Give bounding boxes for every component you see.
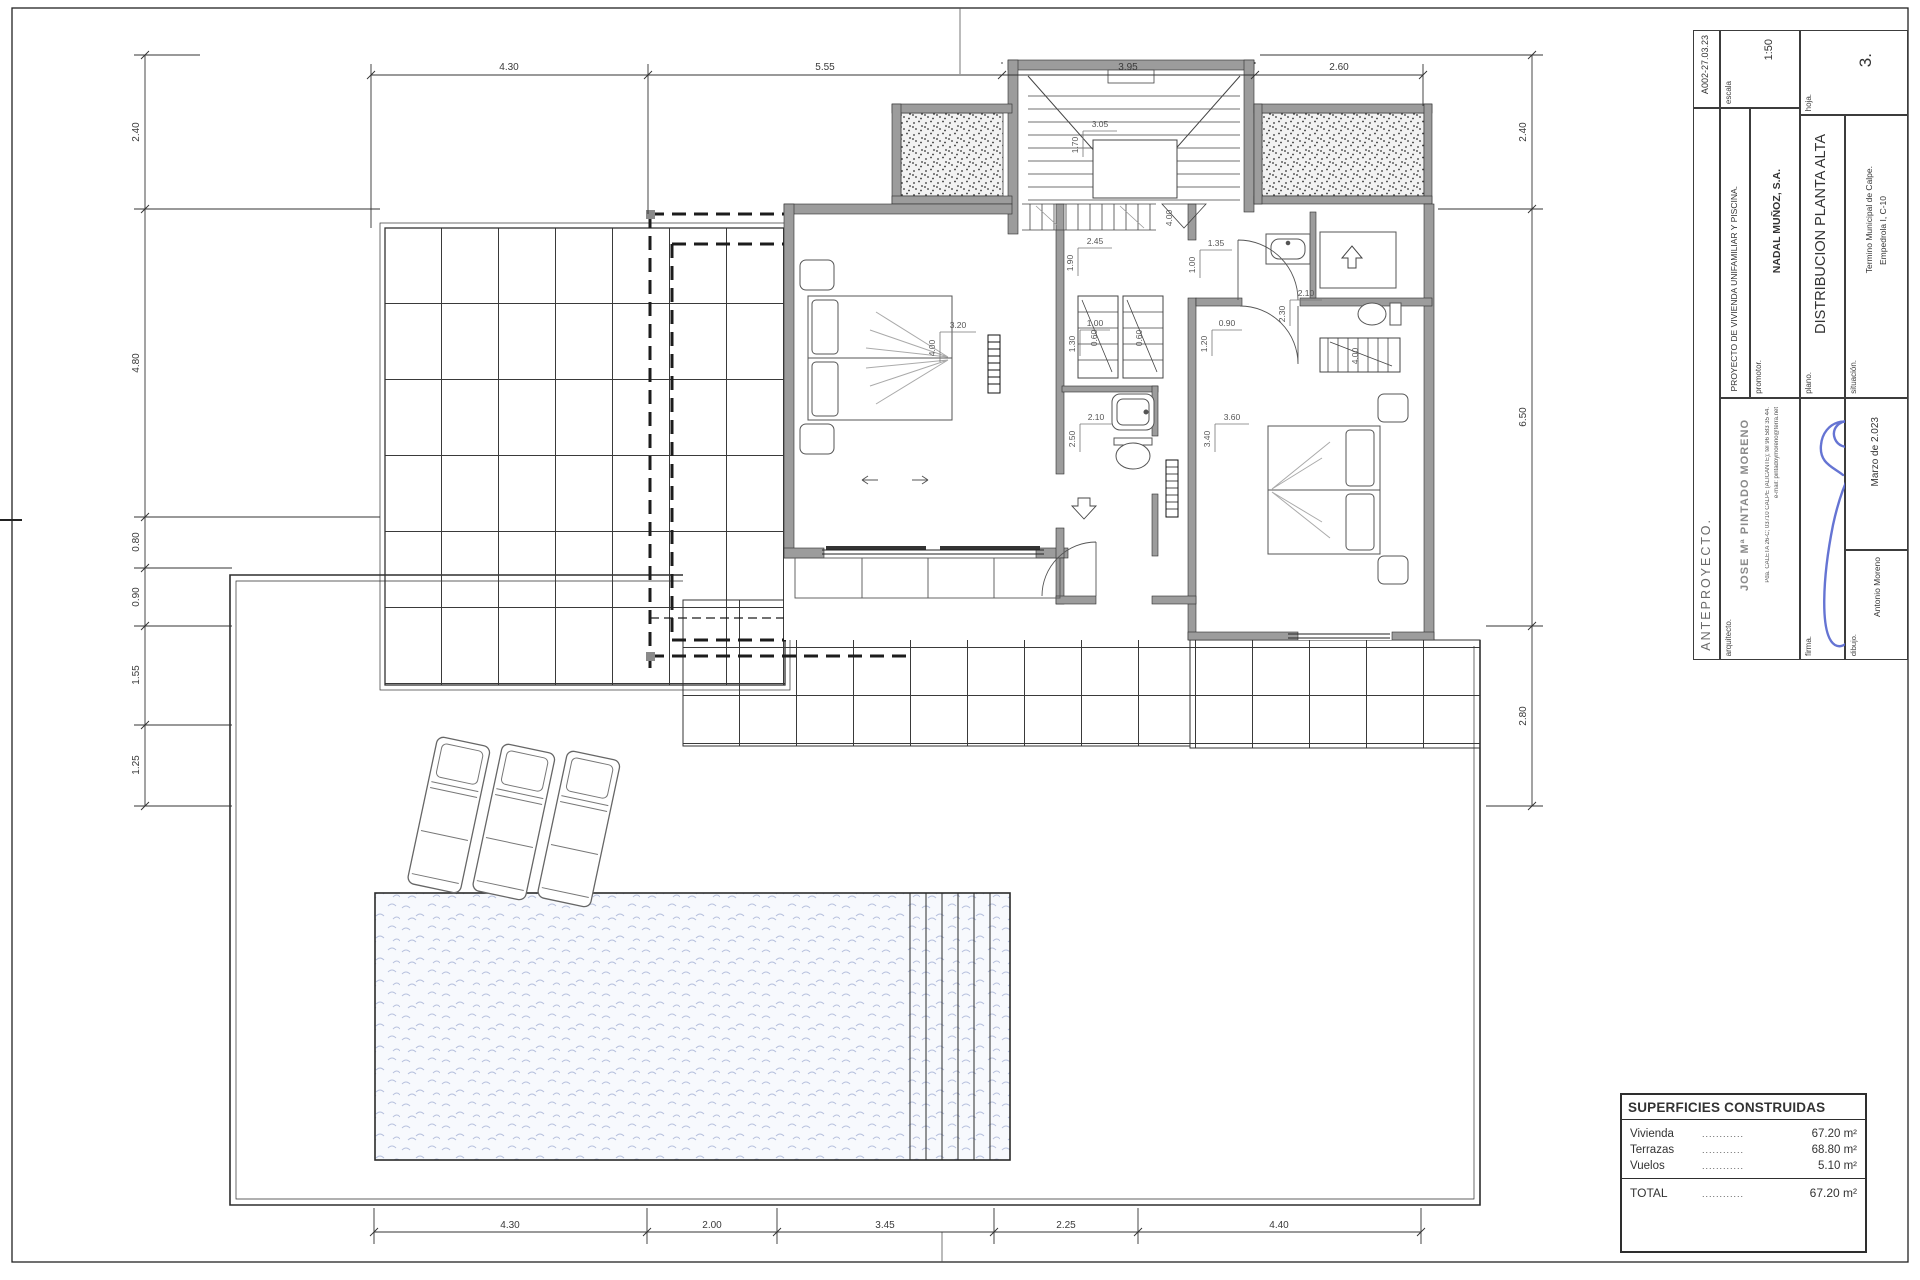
plan-name-label: plano. [1804, 372, 1813, 394]
svg-text:2.60: 2.60 [1329, 62, 1349, 73]
svg-text:2.30: 2.30 [1277, 305, 1287, 322]
svg-text:3.95: 3.95 [1118, 62, 1138, 73]
promoter-name: NADAL MUÑOZ, S.A. [1771, 169, 1783, 273]
anteproyecto-cell: ANTEPROYECTO. [1693, 108, 1720, 660]
svg-text:1.25: 1.25 [131, 755, 142, 775]
draughtsman-name: Antonio Moreno [1872, 557, 1882, 617]
svg-text:3.20: 3.20 [950, 320, 967, 330]
svg-text:4.40: 4.40 [1269, 1220, 1289, 1231]
svg-text:6.50: 6.50 [1518, 407, 1529, 427]
svg-text:2.50: 2.50 [1067, 430, 1077, 447]
bottom-dimensions [370, 1208, 1425, 1244]
row-dots: ............ [1702, 1145, 1795, 1155]
svg-text:1.00: 1.00 [1187, 256, 1197, 273]
total-label: TOTAL [1630, 1186, 1702, 1200]
drawing-ref: A002-27.03.23 [1700, 35, 1710, 94]
row-value: 68.80 m² [1795, 1144, 1857, 1156]
row-value: 5.10 m² [1795, 1160, 1857, 1172]
scale-cell: escala 1:50 [1720, 30, 1800, 108]
svg-text:1.70: 1.70 [1070, 136, 1080, 153]
total-value: 67.20 m² [1795, 1186, 1857, 1200]
svg-text:2.80: 2.80 [1518, 706, 1529, 726]
anteproyecto-text: ANTEPROYECTO. [1699, 518, 1713, 651]
svg-text:1.00: 1.00 [1087, 318, 1104, 328]
drawing-sheet: 4.30 5.55 3.95 2.60 4.30 2.00 3.45 2.25 … [0, 0, 1920, 1280]
table-row: Terrazas ............ 68.80 m² [1630, 1144, 1857, 1156]
svg-text:3.05: 3.05 [1092, 119, 1109, 129]
architect-email: e-mail: pintadoymoreno@terra.net [1774, 407, 1780, 498]
total-dots: ............ [1702, 1189, 1795, 1199]
right-dimension-labels: 2.40 6.50 2.80 [1518, 122, 1529, 726]
row-dots: ............ [1702, 1161, 1795, 1171]
pool [375, 893, 1010, 1160]
location-label: situación. [1849, 360, 1858, 394]
svg-text:0.60: 0.60 [1089, 329, 1099, 346]
svg-text:4.00: 4.00 [1350, 347, 1360, 364]
closet-right [1320, 338, 1400, 372]
svg-text:3.40: 3.40 [1202, 430, 1212, 447]
date-value: Marzo de 2.023 [1870, 417, 1881, 487]
row-label: Vuelos [1630, 1160, 1702, 1172]
promoter-cell: promotor. NADAL MUÑOZ, S.A. [1750, 108, 1800, 398]
architect-cell: arquitecto. JOSE Mª PINTADO MORENO Pda. … [1720, 398, 1800, 660]
title-block: A002-27.03.23 escala 1:50 hoja. 3. ANTEP… [1693, 30, 1908, 660]
svg-text:2.25: 2.25 [1056, 1220, 1076, 1231]
architect-label: arquitecto. [1724, 619, 1733, 656]
svg-text:2.40: 2.40 [131, 122, 142, 142]
plan-name-cell: plano. DISTRIBUCION PLANTA ALTA [1800, 115, 1845, 398]
drawing-ref-cell: A002-27.03.23 [1693, 30, 1720, 108]
sheet-number-label: hoja. [1804, 94, 1813, 111]
left-dimension-labels: 2.40 4.80 0.80 0.90 1.55 1.25 [131, 122, 142, 775]
svg-text:3.45: 3.45 [875, 1220, 895, 1231]
svg-text:0.60: 0.60 [1134, 329, 1144, 346]
svg-text:4.00: 4.00 [1164, 209, 1174, 226]
signature-cell: firma. [1800, 398, 1845, 660]
row-value: 67.20 m² [1795, 1128, 1857, 1140]
sheet-number-cell: hoja. 3. [1800, 30, 1908, 115]
svg-text:0.80: 0.80 [131, 532, 142, 552]
svg-text:4.80: 4.80 [131, 353, 142, 373]
row-label: Terrazas [1630, 1144, 1702, 1156]
svg-text:2.00: 2.00 [702, 1220, 722, 1231]
svg-text:2.45: 2.45 [1087, 236, 1104, 246]
svg-text:2.10: 2.10 [1088, 412, 1105, 422]
svg-text:4.30: 4.30 [499, 62, 519, 73]
plan-name: DISTRIBUCION PLANTA ALTA [1813, 134, 1829, 334]
sheet-number: 3. [1856, 53, 1876, 67]
promoter-label: promotor. [1754, 360, 1763, 394]
svg-text:2.10: 2.10 [1298, 288, 1315, 298]
location-cell: situación. Termino Municipal de Calpe. E… [1845, 115, 1908, 398]
svg-text:1.90: 1.90 [1065, 254, 1075, 271]
svg-text:2.40: 2.40 [1518, 122, 1529, 142]
floor-plan-drawing: 4.30 5.55 3.95 2.60 4.30 2.00 3.45 2.25 … [0, 0, 1920, 1280]
svg-text:1.30: 1.30 [1067, 335, 1077, 352]
draughtsman-cell: dibujo. Antonio Moreno [1845, 550, 1908, 660]
surfaces-table-title: SUPERFICIES CONSTRUIDAS [1622, 1095, 1865, 1120]
table-row: Vivienda ............ 67.20 m² [1630, 1128, 1857, 1140]
svg-text:4.00: 4.00 [927, 339, 937, 356]
svg-text:4.30: 4.30 [500, 1220, 520, 1231]
row-label: Vivienda [1630, 1128, 1702, 1140]
svg-text:3.60: 3.60 [1224, 412, 1241, 422]
date-cell: Marzo de 2.023 [1845, 398, 1908, 550]
scale-value: 1:50 [1763, 39, 1775, 60]
surfaces-table: SUPERFICIES CONSTRUIDAS Vivienda .......… [1620, 1093, 1867, 1253]
svg-text:1.35: 1.35 [1208, 238, 1225, 248]
left-dimensions [134, 51, 380, 810]
svg-text:0.90: 0.90 [1219, 318, 1236, 328]
project-title: PROYECTO DE VIVIENDA UNIFAMILIAR Y PISCI… [1729, 186, 1739, 391]
location-line-2: Empedrola I, C-10 [1878, 196, 1888, 265]
location-line-1: Termino Municipal de Calpe. [1864, 166, 1874, 273]
draughtsman-label: dibujo. [1849, 634, 1858, 656]
scale-label: escala [1724, 81, 1733, 104]
project-cell: PROYECTO DE VIVIENDA UNIFAMILIAR Y PISCI… [1720, 108, 1750, 398]
svg-text:5.55: 5.55 [815, 62, 835, 73]
sun-loungers [407, 736, 621, 908]
table-total-row: TOTAL ............ 67.20 m² [1630, 1186, 1857, 1200]
bottom-dimension-labels: 4.30 2.00 3.45 2.25 4.40 [500, 1220, 1289, 1231]
svg-text:1.55: 1.55 [131, 665, 142, 685]
architect-address: Pda. CALETA 26-C; 03710 CALPE (ALICANTE)… [1765, 407, 1771, 583]
table-row: Vuelos ............ 5.10 m² [1630, 1160, 1857, 1172]
architect-name: JOSE Mª PINTADO MORENO [1739, 419, 1751, 591]
svg-text:1.20: 1.20 [1199, 335, 1209, 352]
svg-text:0.90: 0.90 [131, 587, 142, 607]
row-dots: ............ [1702, 1129, 1795, 1139]
